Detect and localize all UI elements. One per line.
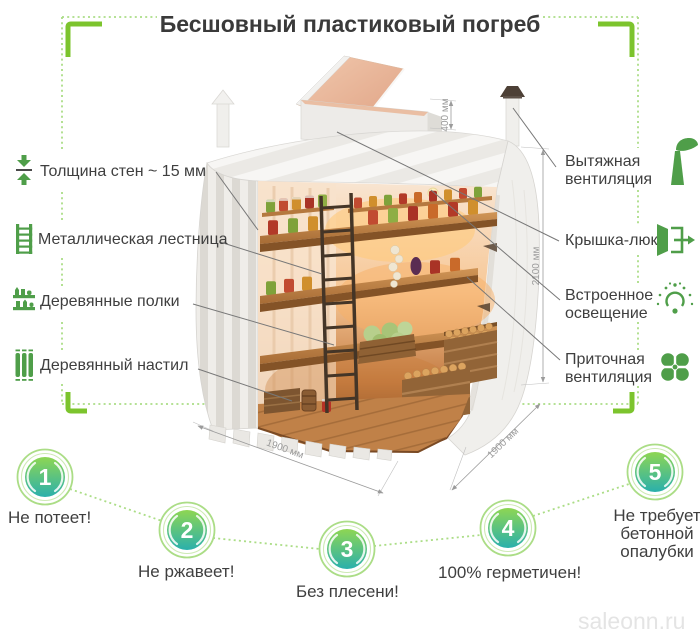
light-icon [657, 282, 693, 313]
right-labels: Вытяжная вентиляция Крышка-люк Встроенно… [565, 138, 698, 386]
benefit-text: Без плесени! [296, 582, 399, 601]
label-wall-thickness: Толщина стен ~ 15 мм [40, 163, 206, 180]
label-exhaust-vent-line1: Вытяжная [565, 153, 640, 170]
supply-vent-icon [659, 351, 691, 383]
bracket-top-left [68, 24, 102, 57]
benefit-number: 5 [649, 459, 662, 485]
bracket-bottom-right [613, 392, 632, 411]
bracket-top-right [598, 24, 632, 57]
benefit-number: 3 [341, 536, 354, 562]
benefit-text: Не потеет! [8, 508, 91, 527]
cellar-illustration [196, 56, 539, 461]
benefit-text: 100% герметичен! [438, 563, 581, 582]
label-decking: Деревянный настил [40, 357, 188, 374]
wall-thickness-icon [16, 155, 32, 185]
infographic-plastic-cellar: Бесшовный пластиковый погреб [0, 0, 700, 640]
shelves-icon [13, 287, 35, 310]
benefit-1: 1 Не потеет! [8, 450, 91, 528]
hatch-icon [657, 224, 695, 256]
benefit-number: 4 [502, 515, 515, 541]
benefit-text-line1: Не требует [613, 506, 700, 525]
benefit-number: 1 [39, 464, 52, 490]
label-supply-vent-line1: Приточная [565, 351, 645, 368]
label-lighting-line1: Встроенное [565, 287, 653, 304]
infographic-canvas: Бесшовный пластиковый погреб [0, 0, 700, 640]
exhaust-vent-icon [671, 138, 698, 185]
interior-cutaway [258, 181, 497, 452]
benefit-text-line3: опалубки [620, 542, 693, 561]
benefit-text: Не ржавеет! [138, 562, 234, 581]
label-shelves: Деревянные полки [40, 293, 180, 310]
page-title: Бесшовный пластиковый погреб [160, 11, 541, 37]
benefit-number: 2 [181, 517, 194, 543]
label-exhaust-vent-line2: вентиляция [565, 171, 652, 188]
benefit-3: 3 Без плесени! [296, 522, 399, 602]
watermark: saleonn.ru [578, 608, 685, 634]
body-left-face [196, 163, 258, 430]
vent-pipe [500, 86, 525, 146]
benefit-2: 2 Не ржавеет! [138, 503, 234, 582]
benefit-text-line2: бетонной [620, 524, 693, 543]
left-pipe [212, 90, 234, 147]
label-ladder: Металлическая лестница [38, 231, 228, 248]
decking-icon [16, 350, 34, 381]
benefit-4: 4 100% герметичен! [438, 501, 581, 583]
dim-text-400: 400 мм [440, 98, 451, 131]
ladder-icon [16, 224, 32, 254]
benefit-5: 5 Не требует бетонной опалубки [613, 445, 700, 562]
body-top [207, 131, 508, 188]
label-lighting-line2: освещение [565, 305, 648, 322]
left-labels: Толщина стен ~ 15 мм Металлическая лестн… [13, 155, 228, 381]
label-supply-vent-line2: вентиляция [565, 369, 652, 386]
label-hatch: Крышка-люк [565, 232, 658, 249]
bracket-bottom-left [68, 392, 87, 411]
